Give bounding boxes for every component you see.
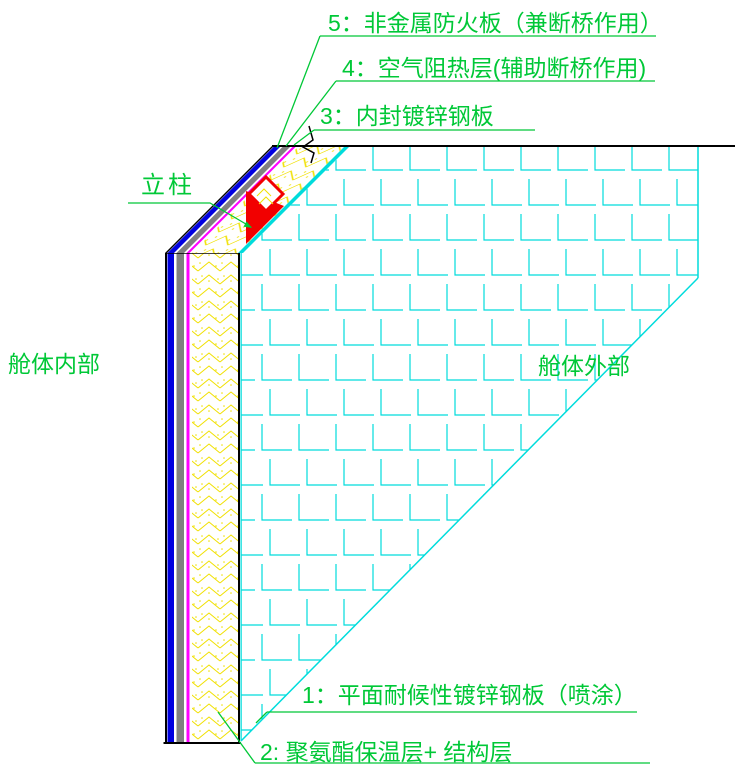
column-label: 立柱 [141,172,195,199]
outer-edge-line [165,253,167,743]
net-hatch-area [241,146,698,741]
callout-5-leader [277,36,320,148]
cad-drawing: 5：非金属防火板（兼断桥作用） 4：空气阻热层(辅助断桥作用) 3：内封镀锌钢板… [0,0,735,775]
cabin-outer-panel-region [241,146,698,741]
cabin-exterior-label: 舱体外部 [538,353,630,379]
callout-5-label: 5：非金属防火板（兼断桥作用） [328,10,663,36]
callout-4-label: 4：空气阻热层(辅助断桥作用) [342,55,646,81]
insulation-layer [192,253,238,743]
fireproof-board-gray-layer [177,253,185,743]
callout-1-label: 1：平面耐候性镀锌钢板（喷涂） [302,682,637,708]
wall-vertical-section [163,251,241,743]
callout-2-label: 2: 聚氨酯保温层+ 结构层 [260,739,512,765]
inner-plate-magenta-layer [187,253,190,743]
callout-3-label: 3：内封镀锌钢板 [320,103,494,129]
inner-edge-line [238,253,240,743]
cabin-interior-label: 舱体内部 [8,351,100,377]
steel-plate-blue-layer [168,253,175,743]
